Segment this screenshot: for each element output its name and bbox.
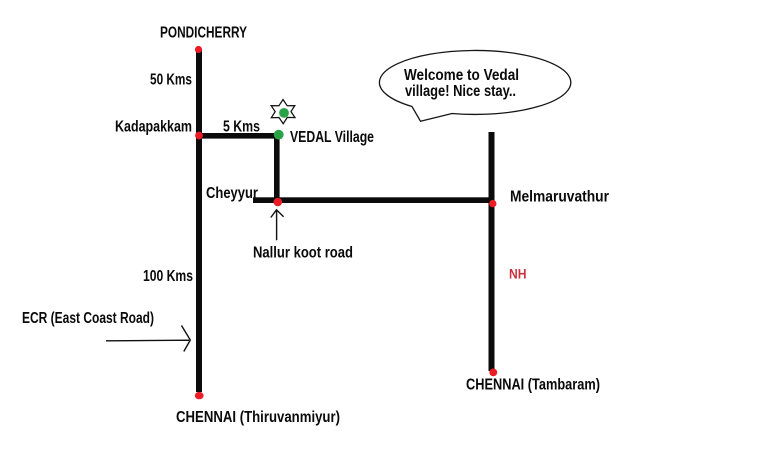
svg-text:Welcome to Vedal: Welcome to Vedal xyxy=(404,67,519,84)
svg-text:NH: NH xyxy=(509,266,527,282)
svg-text:village! Nice stay..: village! Nice stay.. xyxy=(405,83,516,100)
svg-text:Cheyyur: Cheyyur xyxy=(206,185,258,202)
svg-text:Kadapakkam: Kadapakkam xyxy=(115,118,192,135)
svg-text:100 Kms: 100 Kms xyxy=(143,268,193,285)
svg-text:50 Kms: 50 Kms xyxy=(150,71,192,88)
svg-text:ECR (East Coast Road): ECR (East Coast Road) xyxy=(22,310,154,327)
svg-text:Melmaruvathur: Melmaruvathur xyxy=(510,189,609,206)
svg-text:PONDICHERRY: PONDICHERRY xyxy=(160,24,248,41)
svg-text:Nallur koot road: Nallur koot road xyxy=(253,244,353,261)
svg-text:5 Kms: 5 Kms xyxy=(223,118,260,135)
svg-text:CHENNAI (Tambaram): CHENNAI (Tambaram) xyxy=(466,377,600,394)
svg-text:VEDAL Village: VEDAL Village xyxy=(290,129,374,146)
svg-text:CHENNAI (Thiruvanmiyur): CHENNAI (Thiruvanmiyur) xyxy=(176,409,340,426)
